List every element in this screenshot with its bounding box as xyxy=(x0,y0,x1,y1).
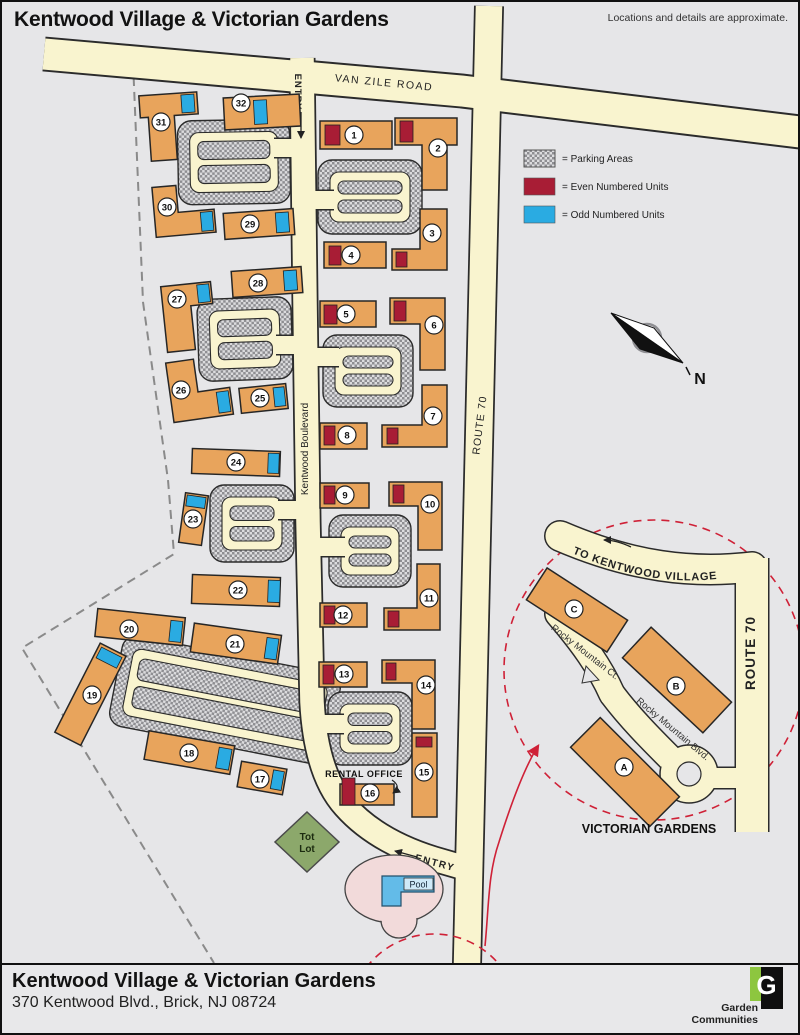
legend-parking-swatch xyxy=(524,150,555,167)
building-badge-10: 10 xyxy=(421,495,439,513)
even-unit-marker xyxy=(342,778,355,805)
kentwood-boulevard-label: Kentwood Boulevard xyxy=(300,403,311,495)
building-badge-19: 19 xyxy=(83,686,101,704)
building-badge-9: 9 xyxy=(336,486,354,504)
svg-text:8: 8 xyxy=(344,430,349,441)
legend-odd-swatch xyxy=(524,206,555,223)
building-badge-5: 5 xyxy=(337,305,355,323)
building-badge-24: 24 xyxy=(227,453,245,471)
svg-text:10: 10 xyxy=(425,499,436,510)
building-badge-31: 31 xyxy=(152,113,170,131)
tot-lot-label-line1: Tot xyxy=(300,832,315,843)
building-badge-A: A xyxy=(615,758,633,776)
odd-unit-marker xyxy=(283,270,297,291)
building-badge-11: 11 xyxy=(420,589,438,607)
site-map-svg: VAN ZILE ROAD ROUTE 70 Kentwood Boulevar… xyxy=(2,2,798,964)
building-badge-3: 3 xyxy=(423,224,441,242)
svg-text:28: 28 xyxy=(253,278,264,289)
logo-letter: G xyxy=(750,972,783,998)
svg-text:19: 19 xyxy=(87,690,98,701)
building-badge-27: 27 xyxy=(168,290,186,308)
building-badge-2: 2 xyxy=(429,139,447,157)
building-badge-12: 12 xyxy=(334,606,352,624)
building-badge-8: 8 xyxy=(338,426,356,444)
compass-rose: N xyxy=(611,313,706,388)
building-badge-21: 21 xyxy=(226,635,244,653)
legend-even-swatch xyxy=(524,178,555,195)
even-unit-marker xyxy=(416,737,432,747)
building-badge-C: C xyxy=(565,600,583,618)
building-badge-15: 15 xyxy=(415,763,433,781)
building-20 xyxy=(95,609,185,646)
even-unit-marker xyxy=(400,121,413,142)
footer-title: Kentwood Village & Victorian Gardens xyxy=(12,970,376,993)
odd-unit-marker xyxy=(197,284,211,303)
even-unit-marker xyxy=(393,485,404,503)
svg-text:16: 16 xyxy=(365,788,376,799)
logo-text: Garden Communities xyxy=(691,1003,758,1027)
svg-text:32: 32 xyxy=(236,98,247,109)
parking-area xyxy=(210,485,294,562)
even-unit-marker xyxy=(386,663,396,680)
odd-unit-marker xyxy=(275,212,289,233)
building-badge-23: 23 xyxy=(184,510,202,528)
building-badge-14: 14 xyxy=(417,676,435,694)
building-badge-1: 1 xyxy=(345,126,363,144)
even-unit-marker xyxy=(394,301,406,321)
svg-text:22: 22 xyxy=(233,585,244,596)
building-badge-7: 7 xyxy=(424,407,442,425)
building-badge-32: 32 xyxy=(232,94,250,112)
svg-text:1: 1 xyxy=(351,130,357,141)
even-unit-marker xyxy=(329,246,341,265)
building-badge-20: 20 xyxy=(120,620,138,638)
building-badge-22: 22 xyxy=(229,581,247,599)
svg-text:20: 20 xyxy=(124,624,135,635)
building-badge-13: 13 xyxy=(335,665,353,683)
site-map-page: Kentwood Village & Victorian Gardens Loc… xyxy=(0,0,800,1035)
logo-text-line2: Communities xyxy=(691,1015,758,1027)
odd-unit-marker xyxy=(181,94,195,113)
svg-text:14: 14 xyxy=(421,680,432,691)
odd-unit-marker xyxy=(253,100,267,125)
svg-text:15: 15 xyxy=(419,767,430,778)
even-unit-marker xyxy=(387,428,398,444)
svg-text:3: 3 xyxy=(429,228,434,239)
svg-text:A: A xyxy=(621,762,628,773)
svg-text:23: 23 xyxy=(188,514,199,525)
svg-text:13: 13 xyxy=(339,669,350,680)
odd-unit-marker xyxy=(186,495,206,509)
building-badge-4: 4 xyxy=(342,246,360,264)
logo-text-line1: Garden xyxy=(691,1003,758,1015)
building-badge-29: 29 xyxy=(241,215,259,233)
svg-text:26: 26 xyxy=(176,385,187,396)
svg-text:27: 27 xyxy=(172,294,183,305)
svg-text:C: C xyxy=(571,604,578,615)
legend-odd-label: = Odd Numbered Units xyxy=(562,210,665,221)
even-unit-marker xyxy=(324,486,335,504)
even-unit-marker xyxy=(388,611,399,627)
even-unit-marker xyxy=(324,305,337,324)
svg-text:12: 12 xyxy=(338,610,349,621)
svg-text:6: 6 xyxy=(431,320,436,331)
tot-lot: Tot Lot xyxy=(275,812,339,872)
svg-text:B: B xyxy=(673,681,680,692)
building-badge-B: B xyxy=(667,677,685,695)
svg-text:21: 21 xyxy=(230,639,241,650)
svg-text:17: 17 xyxy=(255,774,266,785)
svg-text:29: 29 xyxy=(245,219,256,230)
svg-text:25: 25 xyxy=(255,393,266,404)
legend-even-label: = Even Numbered Units xyxy=(562,182,668,193)
even-unit-marker xyxy=(325,125,340,145)
svg-text:2: 2 xyxy=(435,143,440,154)
legend-parking-label: = Parking Areas xyxy=(562,154,633,165)
svg-text:18: 18 xyxy=(184,748,195,759)
parking-area xyxy=(177,119,290,205)
building-badge-18: 18 xyxy=(180,744,198,762)
building-badge-28: 28 xyxy=(249,274,267,292)
svg-text:5: 5 xyxy=(343,309,349,320)
odd-unit-marker xyxy=(273,387,286,407)
building-badge-6: 6 xyxy=(425,316,443,334)
pool-label: Pool xyxy=(409,880,427,890)
building-badge-17: 17 xyxy=(251,770,269,788)
compass-needle-dark xyxy=(611,313,683,363)
svg-text:31: 31 xyxy=(156,117,167,128)
location-pointer-arrow xyxy=(485,746,538,946)
pool-area: Pool xyxy=(345,855,443,938)
legend: = Parking Areas = Even Numbered Units = … xyxy=(524,150,668,223)
svg-text:11: 11 xyxy=(424,593,435,604)
odd-unit-marker xyxy=(268,580,281,602)
svg-text:7: 7 xyxy=(430,411,435,422)
compass-north-label: N xyxy=(694,371,706,388)
odd-unit-marker xyxy=(200,211,214,231)
even-unit-marker xyxy=(396,252,407,267)
even-unit-marker xyxy=(324,606,335,624)
victorian-gardens-label: VICTORIAN GARDENS xyxy=(582,822,717,836)
odd-unit-marker xyxy=(264,637,279,659)
svg-text:9: 9 xyxy=(342,490,347,501)
odd-unit-marker xyxy=(216,391,231,413)
rental-office-label: RENTAL OFFICE xyxy=(325,769,403,779)
building-badge-16: 16 xyxy=(361,784,379,802)
footer-bar: Kentwood Village & Victorian Gardens 370… xyxy=(2,963,798,1033)
svg-text:4: 4 xyxy=(348,250,354,261)
inset-route-70-label: ROUTE 70 xyxy=(743,616,758,690)
svg-text:30: 30 xyxy=(162,202,173,213)
tot-lot-label-line2: Lot xyxy=(299,844,315,855)
building-badge-30: 30 xyxy=(158,198,176,216)
building-badge-25: 25 xyxy=(251,389,269,407)
even-unit-marker xyxy=(324,426,335,445)
odd-unit-marker xyxy=(169,620,183,642)
parking-area xyxy=(323,335,413,407)
cul-de-sac-island xyxy=(677,762,701,786)
location-circle xyxy=(349,934,519,964)
even-unit-marker xyxy=(323,665,334,684)
svg-text:24: 24 xyxy=(231,457,242,468)
odd-unit-marker xyxy=(268,453,280,473)
footer-address: 370 Kentwood Blvd., Brick, NJ 08724 xyxy=(12,994,276,1012)
building-badge-26: 26 xyxy=(172,381,190,399)
victorian-gardens-inset: TO KENTWOOD VILLAGE ROUTE 70 Rocky Mount… xyxy=(504,520,798,836)
